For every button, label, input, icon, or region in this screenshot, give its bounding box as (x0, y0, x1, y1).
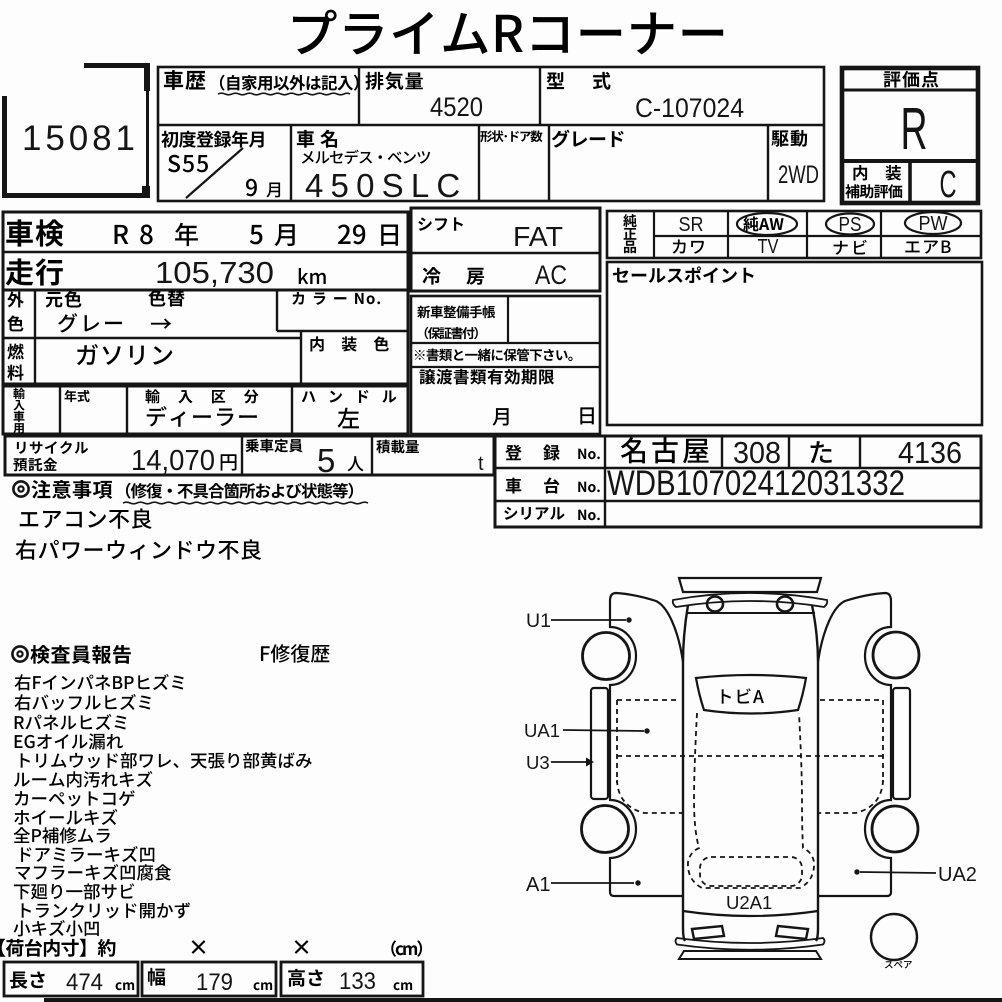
svg-text:450SLC: 450SLC (305, 167, 467, 204)
svg-text:C: C (940, 164, 957, 206)
svg-text:UA1: UA1 (524, 720, 560, 741)
svg-text:t: t (478, 453, 484, 475)
svg-text:U3: U3 (526, 752, 550, 773)
svg-text:179: 179 (196, 969, 233, 996)
svg-text:133: 133 (339, 968, 376, 995)
svg-text:A1: A1 (526, 874, 550, 896)
svg-text:4136: 4136 (898, 435, 962, 470)
svg-text:4520: 4520 (430, 92, 483, 122)
svg-text:FAT: FAT (513, 221, 563, 252)
svg-text:PW: PW (919, 213, 948, 235)
svg-text:14,070: 14,070 (131, 445, 215, 477)
svg-text:UA2: UA2 (938, 864, 977, 886)
svg-text:2WD: 2WD (778, 161, 819, 189)
svg-text:SR: SR (679, 214, 704, 236)
svg-text:U2A1: U2A1 (726, 892, 772, 913)
svg-text:5: 5 (317, 442, 335, 479)
svg-text:15081: 15081 (22, 119, 139, 158)
svg-text:AC: AC (535, 260, 567, 290)
svg-text:R: R (901, 96, 928, 162)
svg-text:WDB10702412031332: WDB10702412031332 (607, 464, 905, 503)
svg-text:TV: TV (758, 236, 780, 258)
svg-text:C-107024: C-107024 (635, 93, 744, 123)
svg-text:105,730: 105,730 (155, 255, 274, 290)
svg-text:U1: U1 (526, 610, 551, 632)
svg-text:474: 474 (66, 969, 103, 996)
svg-text:PS: PS (839, 214, 862, 236)
